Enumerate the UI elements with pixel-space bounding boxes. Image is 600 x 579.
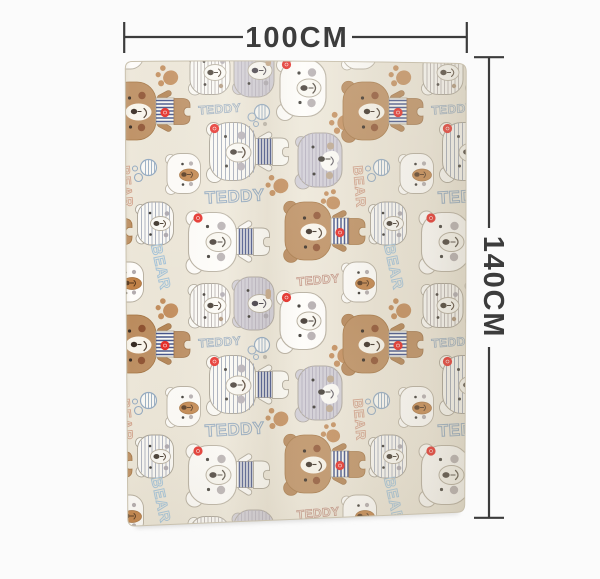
svg-text:140CM: 140CM (477, 236, 509, 339)
svg-text:100CM: 100CM (245, 22, 349, 54)
